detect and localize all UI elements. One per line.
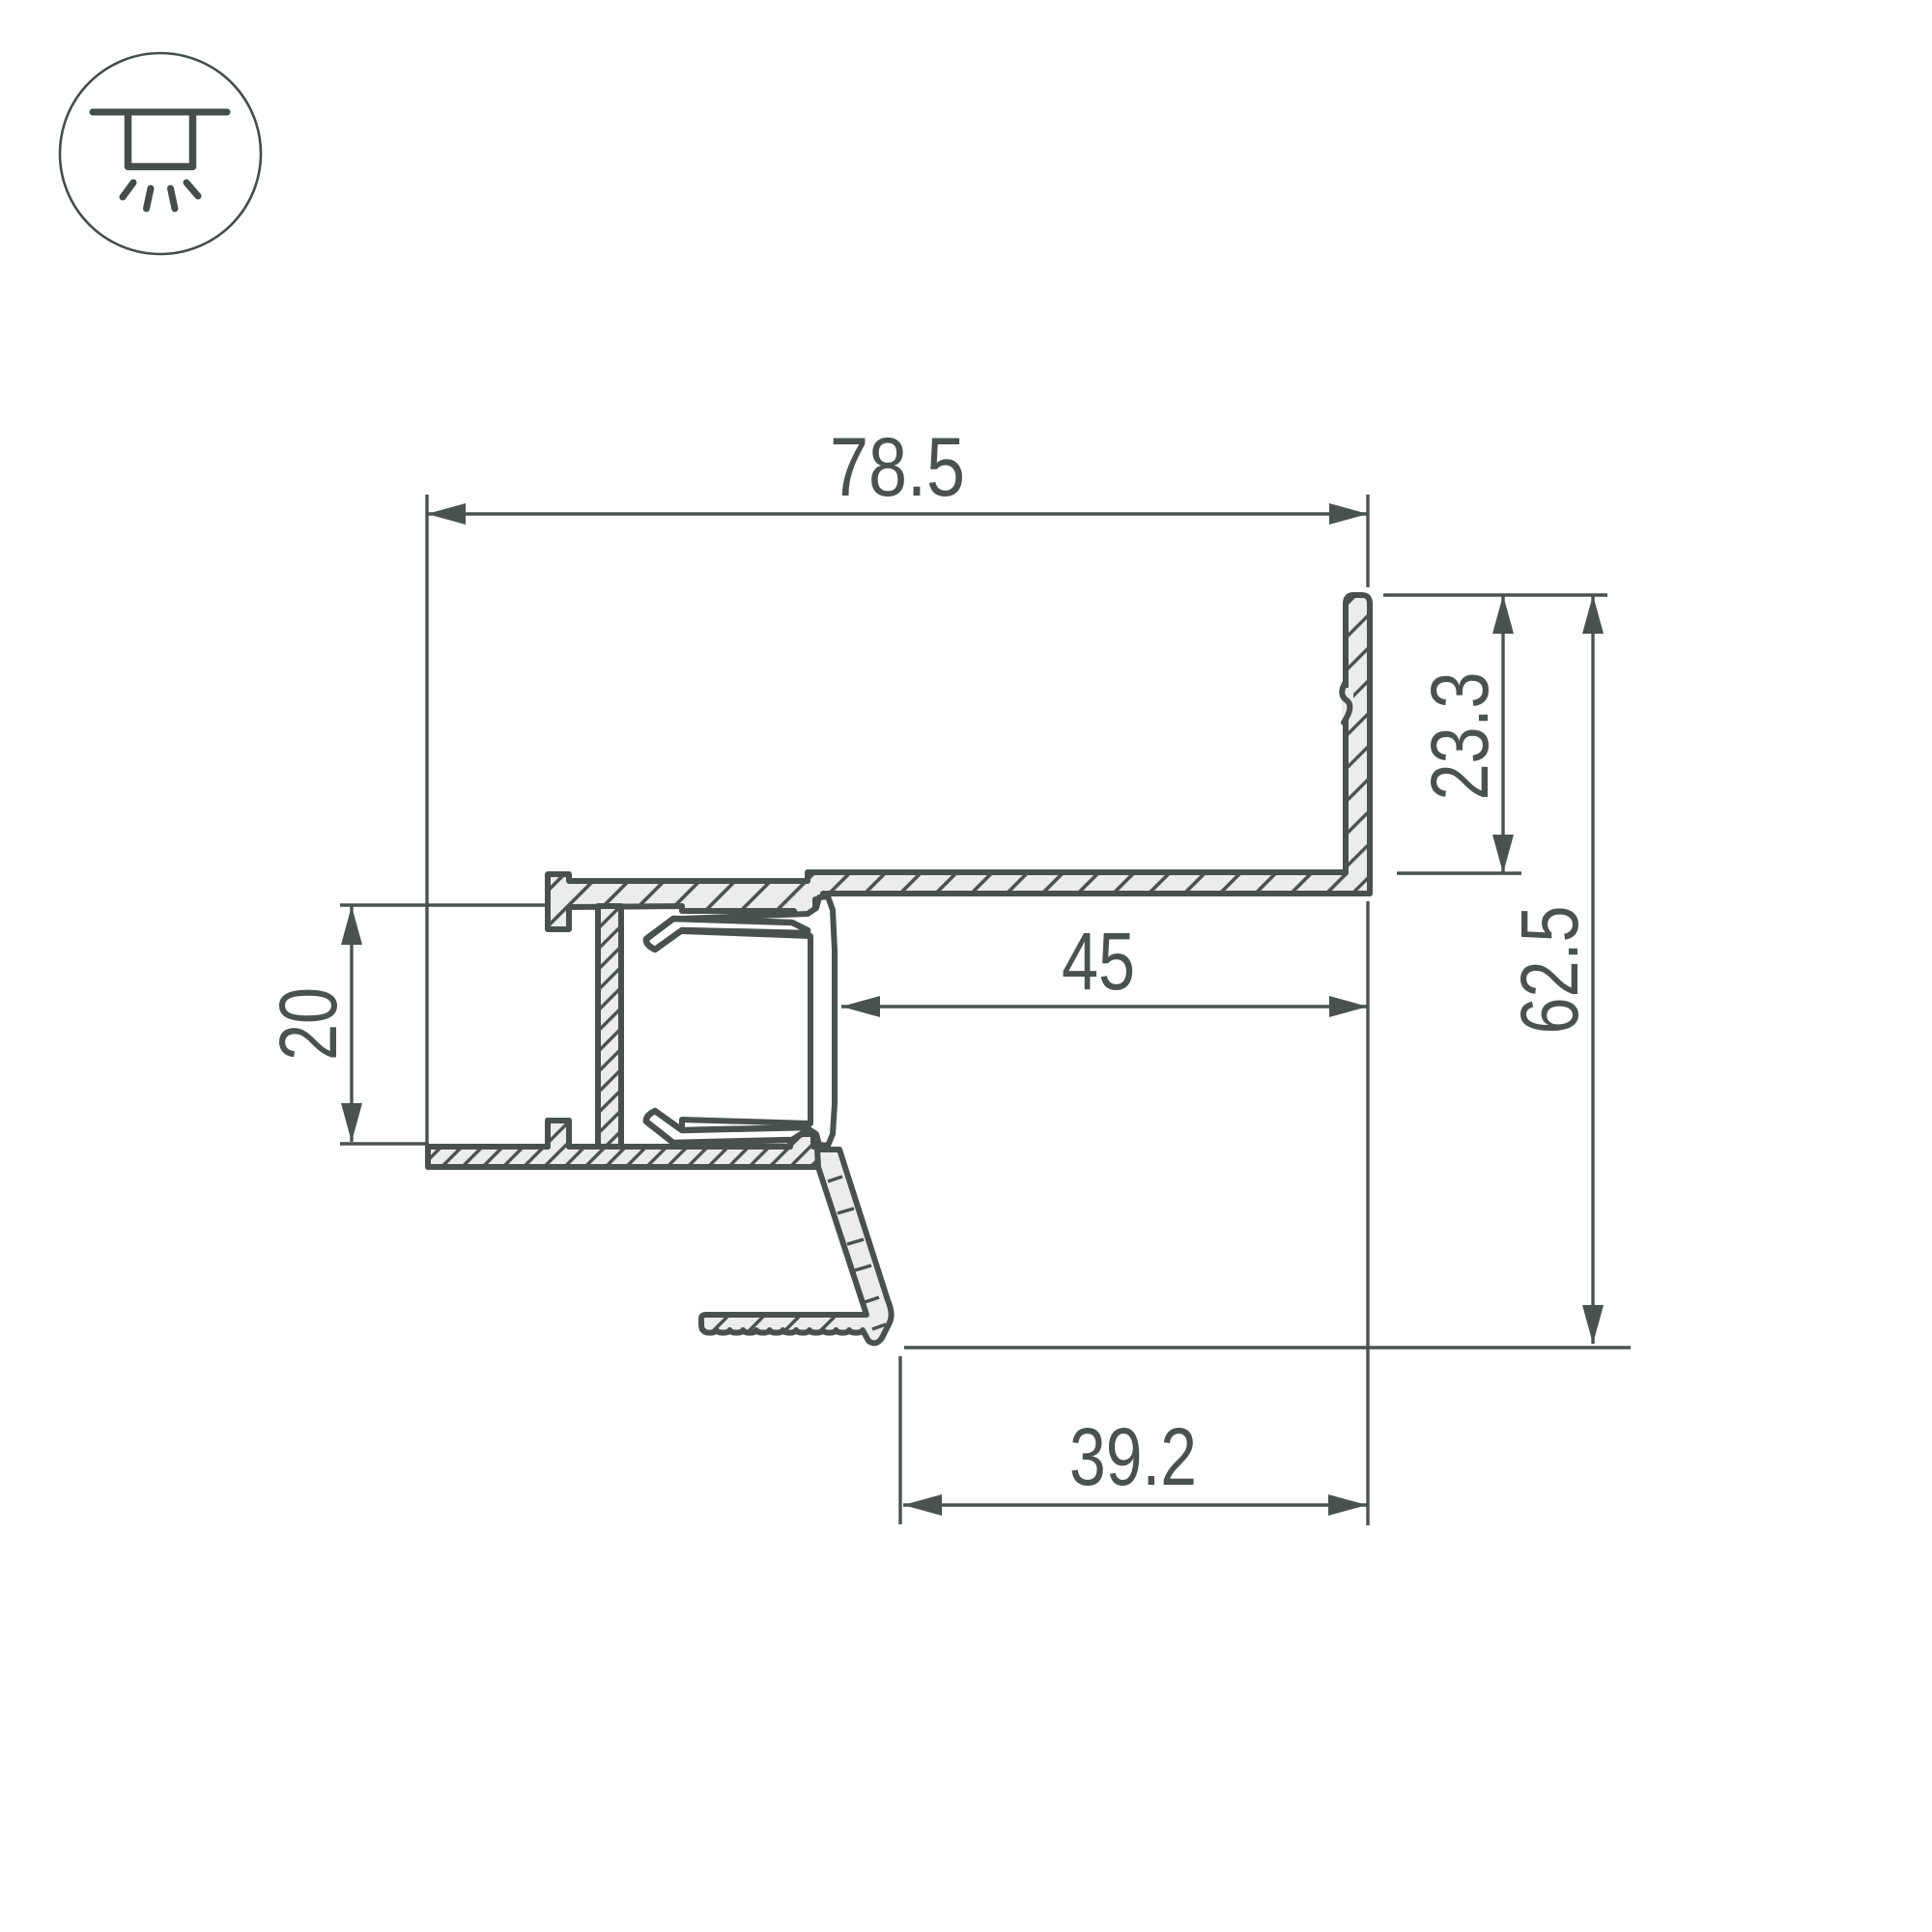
svg-text:39.2: 39.2	[1069, 1411, 1197, 1502]
svg-text:20: 20	[263, 987, 354, 1061]
svg-text:78.5: 78.5	[830, 421, 965, 514]
svg-text:23.3: 23.3	[1414, 672, 1505, 801]
svg-text:62.5: 62.5	[1504, 906, 1595, 1035]
svg-text:45: 45	[1062, 916, 1135, 1007]
